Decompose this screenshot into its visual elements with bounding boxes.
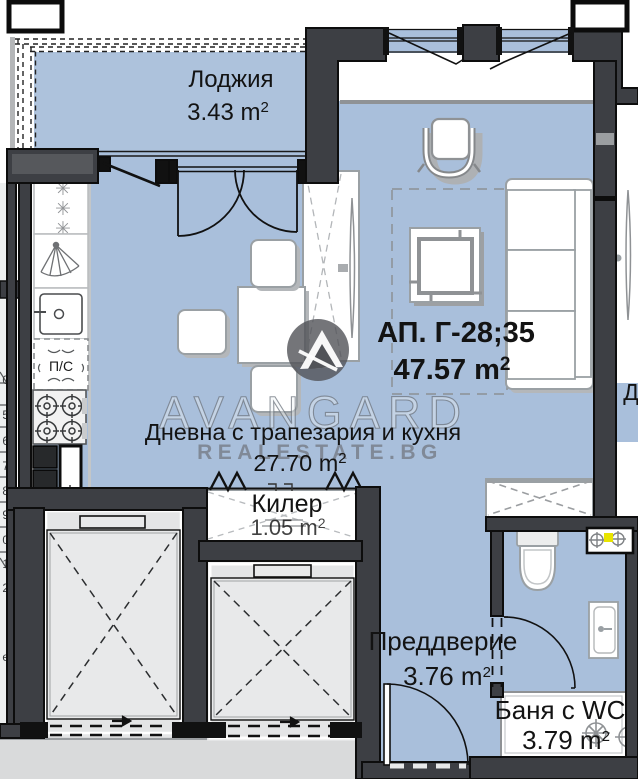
svg-text:Лоджия: Лоджия <box>188 66 273 93</box>
svg-text:3.43 m2: 3.43 m2 <box>187 99 269 126</box>
svg-text:Д: Д <box>623 379 638 405</box>
svg-text:3.76 m2: 3.76 m2 <box>403 661 491 691</box>
svg-text:27.70 m2: 27.70 m2 <box>253 450 346 476</box>
svg-text:✳: ✳ <box>55 199 71 220</box>
svg-text:Преддверие: Преддверие <box>369 626 518 656</box>
svg-text:47.57 m2: 47.57 m2 <box>394 354 511 386</box>
svg-text:Π/С: Π/С <box>49 358 73 374</box>
svg-text:1.05 m2: 1.05 m2 <box>250 515 325 540</box>
svg-text:Килер: Килер <box>252 490 323 518</box>
svg-text:АП. Г-28;35: АП. Г-28;35 <box>377 317 535 349</box>
svg-text:Дневна с трапезария и кухня: Дневна с трапезария и кухня <box>145 419 461 445</box>
svg-text:3.79 m2: 3.79 m2 <box>522 725 610 755</box>
svg-text:Баня с WC: Баня с WC <box>495 695 626 725</box>
